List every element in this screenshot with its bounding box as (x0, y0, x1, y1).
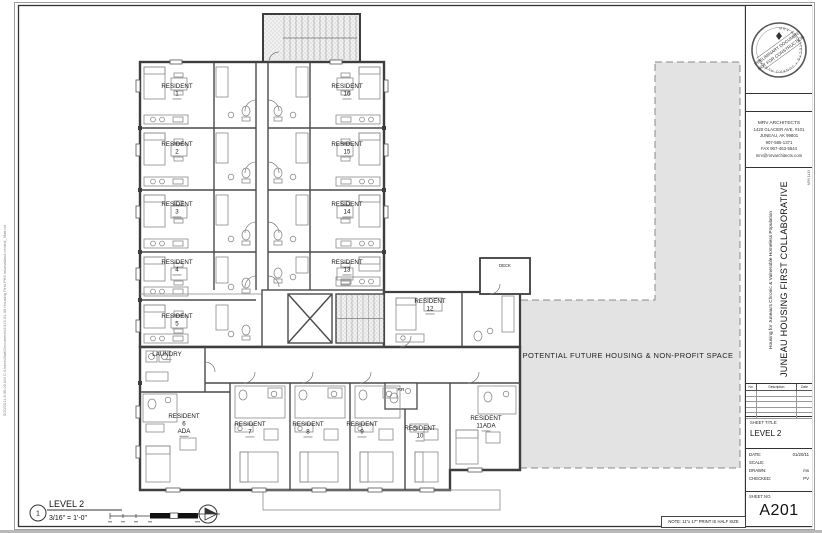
svg-text:LAUNDRY: LAUNDRY (152, 351, 181, 358)
svg-text:6: 6 (182, 420, 186, 427)
svg-text:1: 1 (175, 90, 179, 97)
future-space-region: POTENTIAL FUTURE HOUSING & NON-PROFIT SP… (520, 62, 740, 468)
svg-text:RESIDENT: RESIDENT (161, 201, 193, 208)
print-size-note: NOTE: 11"x 17" PRINT IS HALF SIZE (661, 516, 746, 528)
sheet-number: A201 (749, 502, 809, 520)
svg-text:RESIDENT: RESIDENT (404, 425, 436, 432)
svg-text:DECK: DECK (499, 263, 511, 268)
svg-text:ADA: ADA (178, 428, 192, 435)
svg-text:11ADA: 11ADA (476, 422, 496, 429)
view-scale: 3/16" = 1'-0" (49, 515, 88, 522)
svg-text:RESIDENT: RESIDENT (234, 421, 266, 428)
view-title: LEVEL 2 (49, 499, 84, 509)
architect-address: MRV ARCHITECTS 1420 GLACIER AVE. #101 JU… (746, 112, 812, 168)
seal-logo-icon (776, 32, 782, 40)
svg-text:3: 3 (175, 208, 179, 215)
sheet-title: LEVEL 2 (750, 429, 808, 438)
sheet-date: 01/20/11 (793, 451, 809, 459)
svg-text:RESIDENT: RESIDENT (292, 421, 324, 428)
sheet-title-panel: SHEET TITLE: LEVEL 2 (746, 417, 812, 449)
north-arrow-icon (196, 505, 220, 523)
project-title: JUNEAU HOUSING FIRST COLLABORATIVE (779, 176, 789, 383)
view-number: 1 (36, 511, 40, 518)
architect-seal: MRV ARCHITECTS • JUNEAU ALASKA PRELIMINA… (748, 19, 810, 81)
svg-text:RESIDENT: RESIDENT (331, 259, 363, 266)
seal-section: MRV ARCHITECTS • JUNEAU ALASKA PRELIMINA… (746, 6, 812, 94)
svg-text:RESIDENT: RESIDENT (331, 141, 363, 148)
drawing-sheet: POTENTIAL FUTURE HOUSING & NON-PROFIT SP… (0, 0, 822, 533)
svg-text:RESIDENT: RESIDENT (161, 313, 193, 320)
svg-text:13: 13 (344, 266, 351, 273)
svg-text:RESIDENT: RESIDENT (346, 421, 378, 428)
room-label-rr: RR (398, 387, 405, 393)
svg-text:RESIDENT: RESIDENT (161, 141, 193, 148)
plot-stamp: 5/20/2011 8:36:09 AM C:\Users\Matt\Docum… (2, 225, 12, 525)
graphic-scale-bar (108, 513, 200, 522)
svg-text:10: 10 (417, 432, 424, 439)
svg-text:RESIDENT: RESIDENT (161, 259, 193, 266)
svg-text:RESIDENT: RESIDENT (331, 201, 363, 208)
svg-text:4: 4 (175, 266, 179, 273)
svg-text:RESIDENT: RESIDENT (331, 83, 363, 90)
room-label-deck: DECK (499, 263, 511, 268)
architect-name: MRV ARCHITECTS (758, 120, 800, 127)
svg-text:RESIDENT: RESIDENT (161, 83, 193, 90)
project-number: MRV 1413 (807, 170, 811, 185)
svg-text:16: 16 (344, 90, 351, 97)
future-space-label: POTENTIAL FUTURE HOUSING & NON-PROFIT SP… (523, 351, 734, 360)
svg-text:RESIDENT: RESIDENT (168, 413, 200, 420)
sheet-info-panel: DATE:01/20/11 SCALE: DRAWN:ms CHECKED:PV (746, 449, 812, 492)
title-block: MRV ARCHITECTS • JUNEAU ALASKA PRELIMINA… (746, 6, 812, 526)
sheet-checked: PV (803, 475, 809, 483)
svg-text:15: 15 (344, 148, 351, 155)
svg-text:7: 7 (248, 428, 252, 435)
svg-text:RESIDENT: RESIDENT (414, 298, 446, 305)
svg-text:8: 8 (306, 428, 310, 435)
svg-text:RR: RR (398, 387, 405, 393)
svg-text:2: 2 (175, 148, 179, 155)
project-title-panel: MRV 1413 Housing for Juneau's Chronic & … (746, 168, 812, 384)
svg-text:14: 14 (344, 208, 351, 215)
blank-panel (746, 94, 812, 112)
view-title-block: 1 LEVEL 2 3/16" = 1'-0" (30, 499, 122, 522)
restroom-walls (385, 383, 417, 409)
floor-plan: POTENTIAL FUTURE HOUSING & NON-PROFIT SP… (0, 0, 822, 533)
sheet-drawn: ms (803, 467, 809, 475)
sheet-number-panel: SHEET NO. A201 (746, 492, 812, 526)
revision-table: No. Description Date (746, 384, 812, 417)
svg-text:9: 9 (360, 428, 364, 435)
svg-text:RESIDENT: RESIDENT (470, 415, 502, 422)
svg-text:5: 5 (175, 320, 179, 327)
svg-text:12: 12 (427, 305, 434, 312)
project-subtitle: Housing for Juneau's Chronic & Vulnerabl… (769, 176, 774, 383)
